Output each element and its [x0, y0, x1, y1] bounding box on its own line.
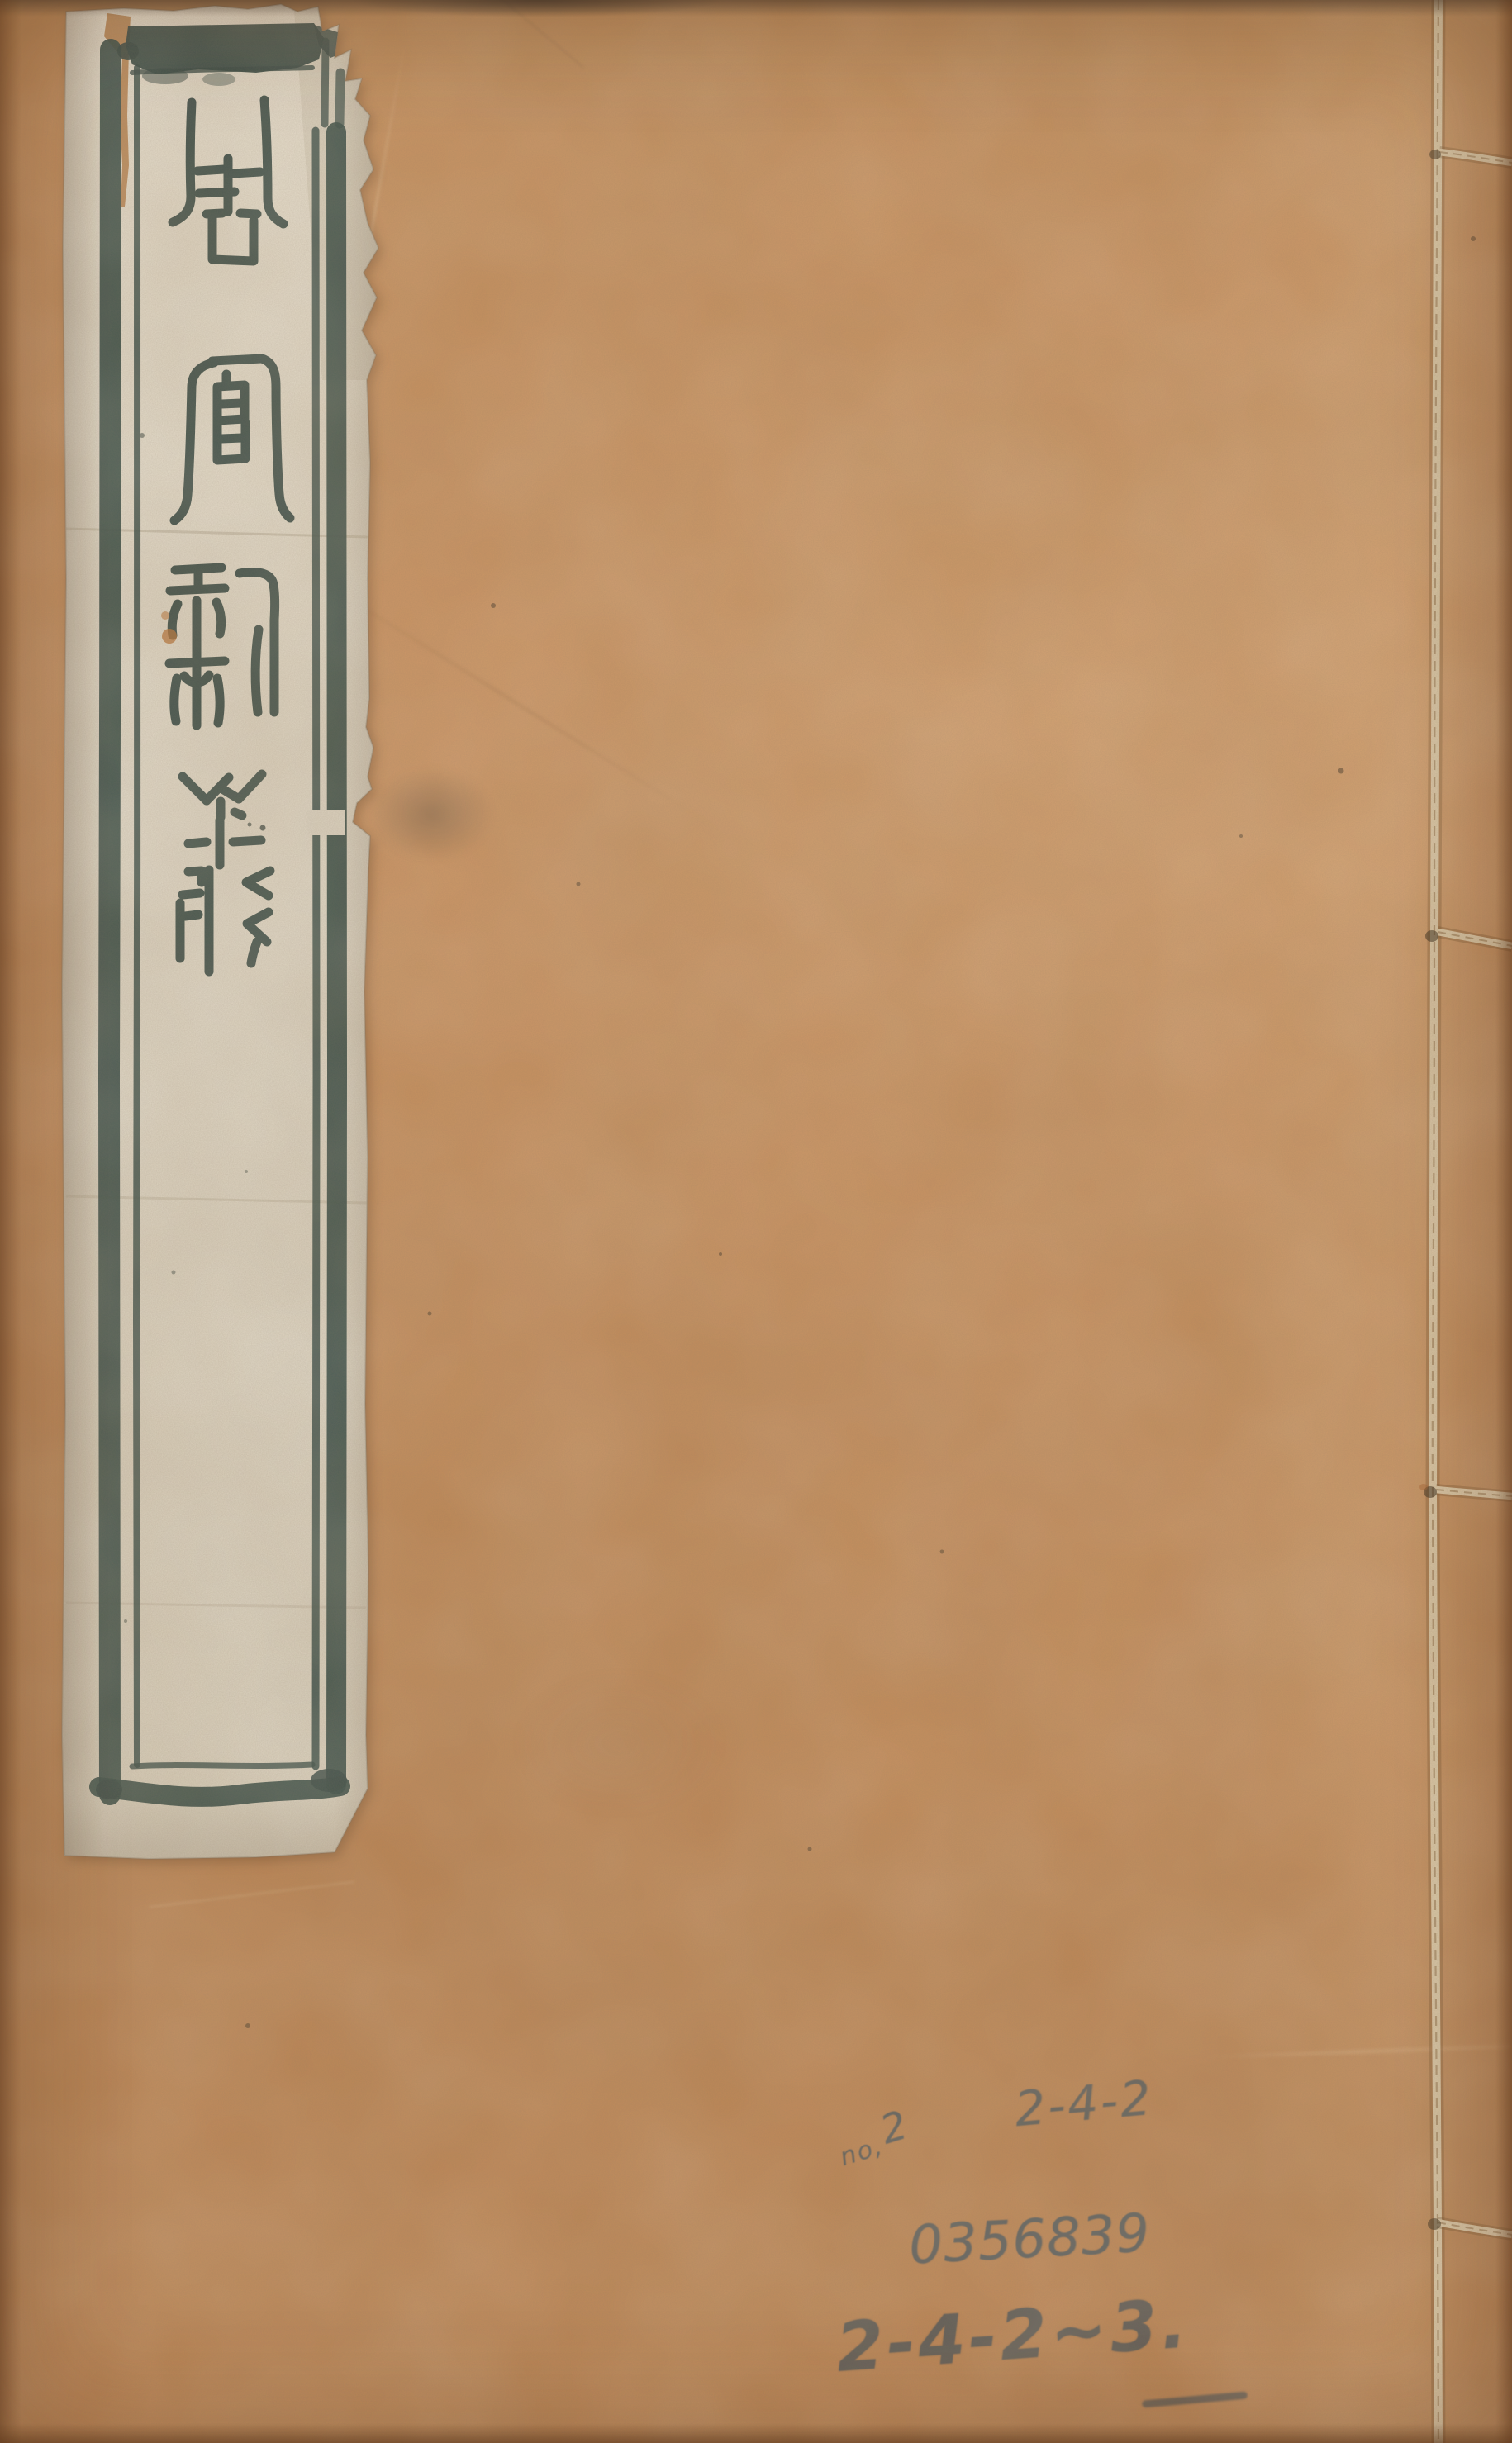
handwritten-serial-number: 0356839: [907, 2203, 1152, 2276]
stitch-knot: [1419, 1484, 1428, 1490]
book-cover-photo: 周官新義: [0, 0, 1512, 2443]
page-top-edge-shadow: [0, 0, 1512, 17]
stitch-knot: [1425, 930, 1438, 942]
handwritten-call-number-top: 2-4-2: [1012, 2070, 1155, 2137]
cover-specks: [245, 236, 1476, 2028]
page-left-edge-shadow: [0, 0, 21, 2443]
binding-thread-vertical: [1433, 0, 1438, 2443]
binding-overlay: [0, 0, 1512, 2443]
page-bottom-edge-shadow: [0, 2423, 1512, 2443]
page-right-edge-shadow: [1495, 0, 1512, 2443]
stitch-knot: [1429, 150, 1441, 159]
stitch-knot: [1428, 2218, 1441, 2230]
